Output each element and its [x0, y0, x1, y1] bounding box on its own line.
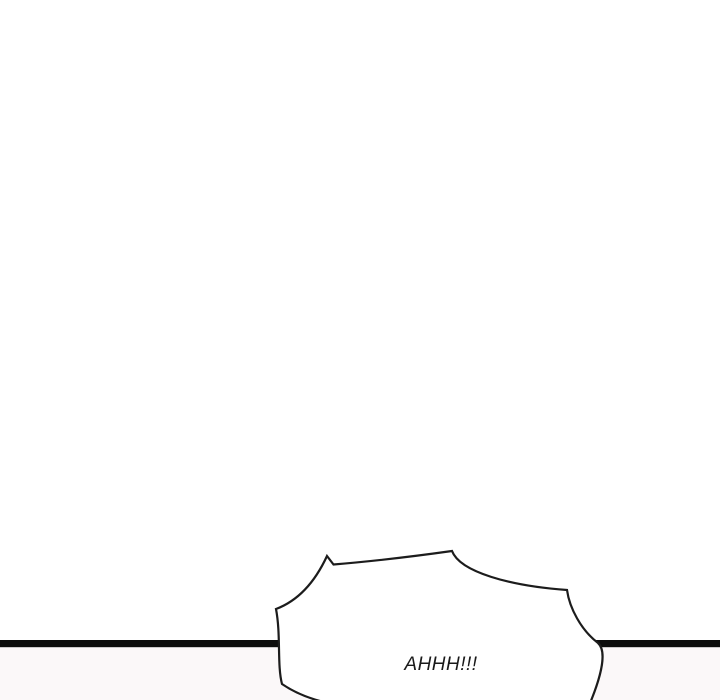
comic-panel: AHHH!!!: [0, 0, 720, 700]
speech-bubble-text: AHHH!!!: [404, 655, 477, 674]
comic-panel-artwork: [0, 0, 720, 700]
shout-bubble: [276, 551, 603, 700]
